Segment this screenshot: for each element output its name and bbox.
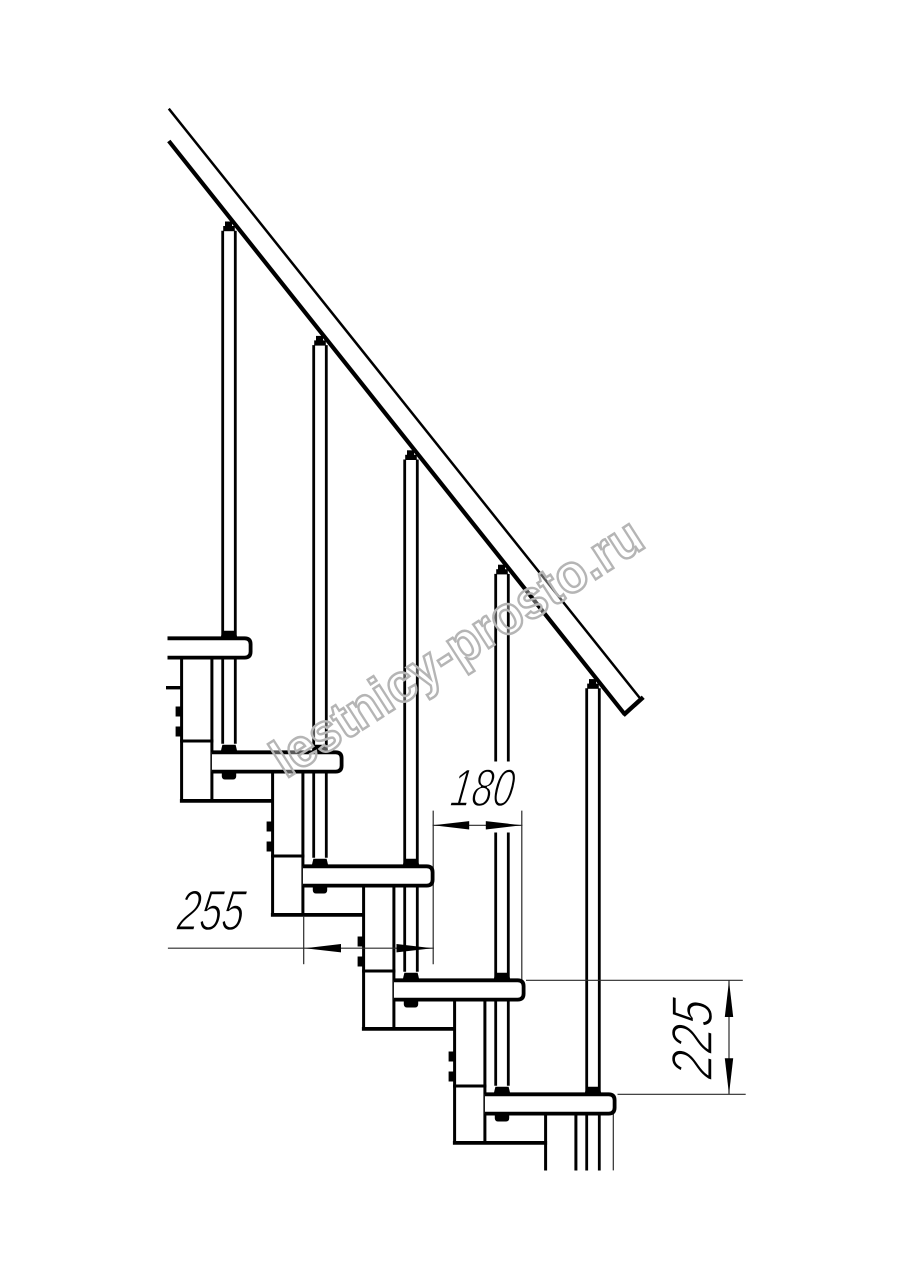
svg-text:255: 255 [173, 879, 249, 943]
svg-text:225: 225 [660, 994, 725, 1082]
svg-text:180: 180 [447, 759, 519, 818]
